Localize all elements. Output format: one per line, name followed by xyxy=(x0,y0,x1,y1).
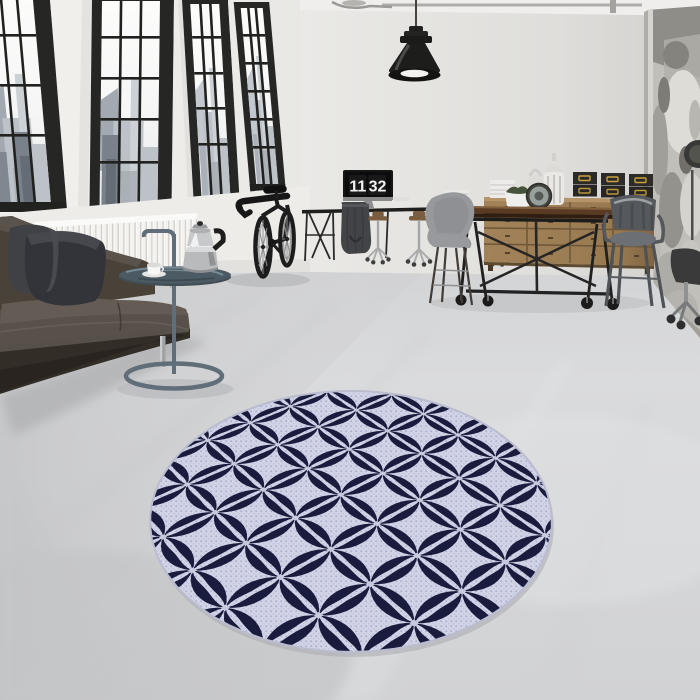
svg-text:11: 11 xyxy=(349,179,366,196)
svg-text:32: 32 xyxy=(369,179,387,196)
